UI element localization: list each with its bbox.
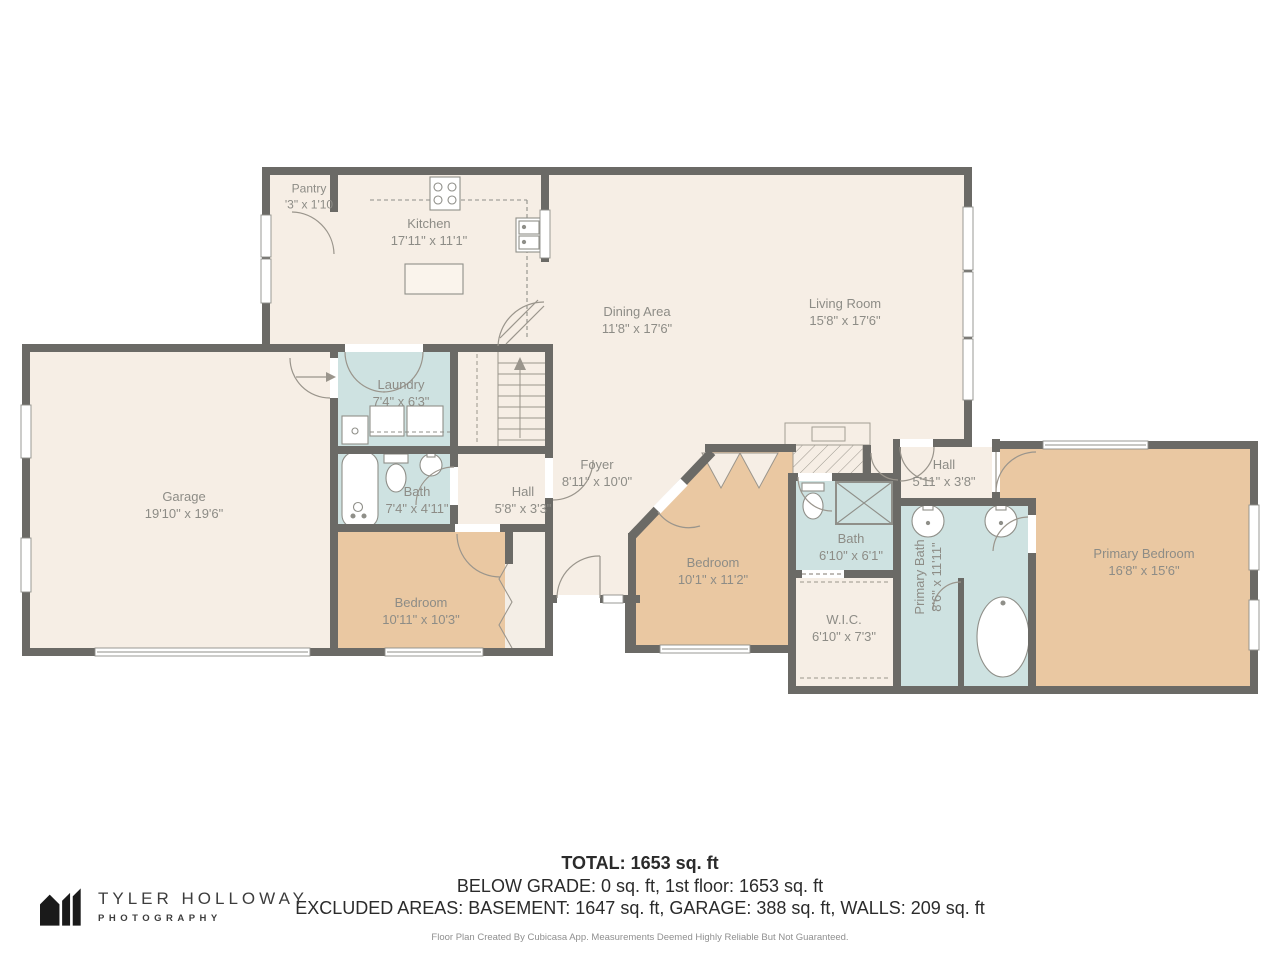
room-name: Foyer (562, 457, 632, 474)
room-name: Primary Bedroom (1093, 546, 1194, 563)
photographer-logo: TYLER HOLLOWAY PHOTOGRAPHY (40, 884, 308, 930)
toilet-tank-icon (384, 454, 408, 463)
room-label-hall2: Hall 5'11" x 3'8" (912, 457, 975, 491)
kitchen-sink-icon (516, 218, 542, 252)
room-label-wic: W.I.C. 6'10" x 7'3" (812, 612, 876, 646)
room-dims: 10'1" x 11'2" (678, 572, 748, 589)
window (21, 405, 31, 458)
logo-tagline-text: PHOTOGRAPHY (98, 913, 308, 924)
disclaimer-text: Floor Plan Created By Cubicasa App. Meas… (0, 932, 1280, 943)
room-label-hall1: Hall 5'8" x 3'3" (495, 484, 552, 518)
room-label-bath2: Bath 6'10" x 6'1" (819, 531, 883, 565)
total-area-text: TOTAL: 1653 sq. ft (0, 852, 1280, 875)
window (603, 595, 623, 603)
room-dims: 5'8" x 3'3" (495, 501, 552, 518)
room-dims: '3" x 1'10 (285, 197, 333, 213)
room-label-bedroom2: Bedroom 10'1" x 11'2" (678, 555, 748, 589)
toilet2-tank-icon (802, 483, 824, 491)
room-name: Living Room (809, 296, 881, 313)
room-dims: 10'11" x 10'3" (382, 612, 460, 629)
window (963, 207, 973, 270)
staircase-lower (785, 423, 870, 477)
window (1249, 505, 1259, 570)
room-dims: 17'11" x 11'1" (391, 233, 468, 250)
room-label-primary-bedroom: Primary Bedroom 16'8" x 15'6" (1093, 546, 1194, 580)
room-label-primary-bath: Primary Bath 8'6" x 11'11" (912, 539, 946, 614)
toilet2-icon (803, 493, 823, 519)
room-name: Bath (385, 484, 448, 501)
room-label-bedroom1: Bedroom 10'11" x 10'3" (382, 595, 460, 629)
room-name: Laundry (373, 377, 430, 394)
room-name: W.I.C. (812, 612, 876, 629)
room-dims: 6'10" x 7'3" (812, 629, 876, 646)
room-label-bath1: Bath 7'4" x 4'11" (385, 484, 448, 518)
room-name: Kitchen (391, 216, 468, 233)
room-label-garage: Garage 19'10" x 19'6" (145, 489, 224, 523)
floor-plan-page: Pantry '3" x 1'10 Kitchen 17'11" x 11'1"… (0, 0, 1280, 960)
window (261, 259, 271, 303)
room-label-foyer: Foyer 8'11" x 10'0" (562, 457, 632, 491)
window (261, 215, 271, 257)
window (540, 210, 550, 258)
room-name: Hall (495, 484, 552, 501)
window (21, 538, 31, 592)
room-dims: 15'8" x 17'6" (809, 313, 881, 330)
floor-fills (30, 175, 1250, 687)
window (963, 272, 973, 337)
room-name: Bedroom (678, 555, 748, 572)
room-name: Bath (819, 531, 883, 548)
room-dims: 7'4" x 6'3" (373, 394, 430, 411)
room-dims: 6'10" x 6'1" (819, 548, 883, 565)
room-dims: 19'10" x 19'6" (145, 506, 224, 523)
room-name: Hall (912, 457, 975, 474)
room-name: Garage (145, 489, 224, 506)
bedroom1-floor (338, 532, 505, 648)
kitchen-island (405, 264, 463, 294)
stairs-floor (458, 352, 545, 446)
room-dims: 16'8" x 15'6" (1093, 563, 1194, 580)
floor-plan-drawing (0, 0, 1280, 960)
window (1249, 600, 1259, 650)
room-label-dining-area: Dining Area 11'8" x 17'6" (602, 304, 672, 338)
room-label-living-room: Living Room 15'8" x 17'6" (809, 296, 881, 330)
houses-logo-icon (40, 884, 86, 930)
room-label-laundry: Laundry 7'4" x 6'3" (373, 377, 430, 411)
stove-icon (430, 177, 460, 210)
bathtub-icon (342, 452, 378, 528)
soaking-tub-icon (977, 597, 1029, 677)
laundry-sink-icon (342, 416, 368, 444)
room-dims: 5'11" x 3'8" (912, 474, 975, 491)
room-name: Pantry (285, 181, 333, 197)
window (963, 339, 973, 400)
room-name: Bedroom (382, 595, 460, 612)
logo-brand-text: TYLER HOLLOWAY (98, 890, 308, 909)
room-name: Primary Bath (912, 539, 929, 614)
room-dims: 8'6" x 11'11" (929, 539, 946, 614)
room-dims: 7'4" x 4'11" (385, 501, 448, 518)
room-label-kitchen: Kitchen 17'11" x 11'1" (391, 216, 468, 250)
room-dims: 11'8" x 17'6" (602, 321, 672, 338)
room-label-pantry: Pantry '3" x 1'10 (285, 181, 333, 212)
room-dims: 8'11" x 10'0" (562, 474, 632, 491)
room-name: Dining Area (602, 304, 672, 321)
